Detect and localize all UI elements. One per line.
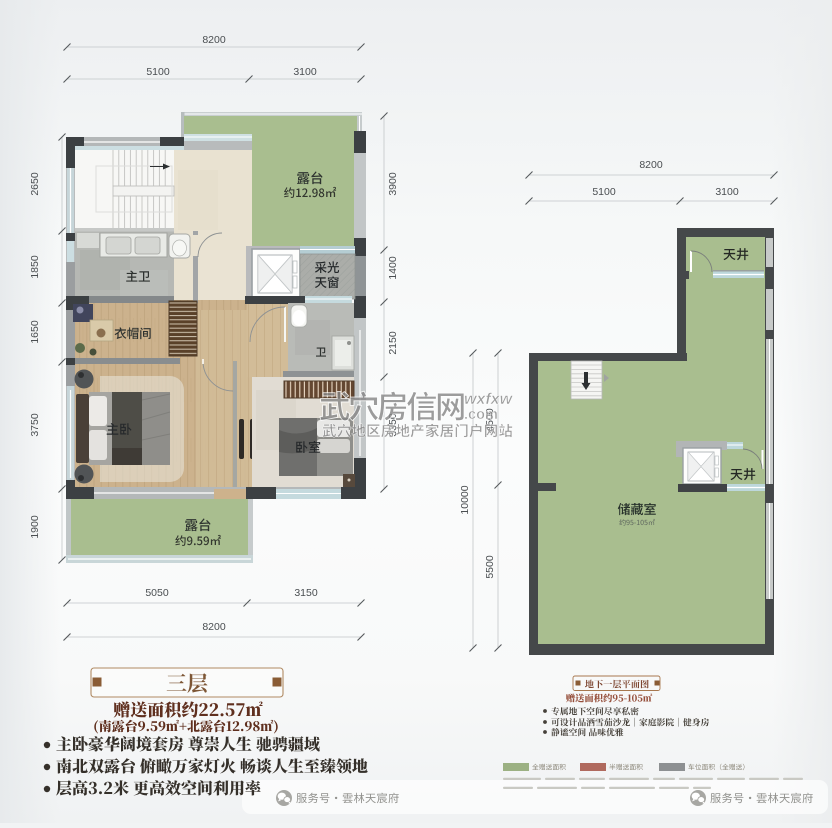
svg-text:8200: 8200 <box>202 621 226 633</box>
svg-text:wxfxw: wxfxw <box>464 391 514 408</box>
svg-text:1850: 1850 <box>29 255 41 279</box>
svg-text:10000: 10000 <box>459 485 471 514</box>
svg-text:1400: 1400 <box>387 256 399 280</box>
svg-text:5050: 5050 <box>145 587 169 599</box>
svg-text:8200: 8200 <box>639 159 663 171</box>
svg-text:3900: 3900 <box>387 172 399 196</box>
svg-text:1900: 1900 <box>29 515 41 539</box>
svg-text:3150: 3150 <box>294 587 318 599</box>
svg-text:2650: 2650 <box>29 172 41 196</box>
svg-text:3750: 3750 <box>29 413 41 437</box>
svg-text:3100: 3100 <box>293 66 317 78</box>
svg-text:3100: 3100 <box>715 186 739 198</box>
svg-text:5500: 5500 <box>484 555 496 579</box>
svg-text:5100: 5100 <box>592 186 616 198</box>
svg-text:2150: 2150 <box>387 331 399 355</box>
svg-text:5100: 5100 <box>146 66 170 78</box>
svg-text:8200: 8200 <box>202 34 226 46</box>
svg-text:1650: 1650 <box>29 320 41 344</box>
svg-text:.com: .com <box>464 407 498 423</box>
